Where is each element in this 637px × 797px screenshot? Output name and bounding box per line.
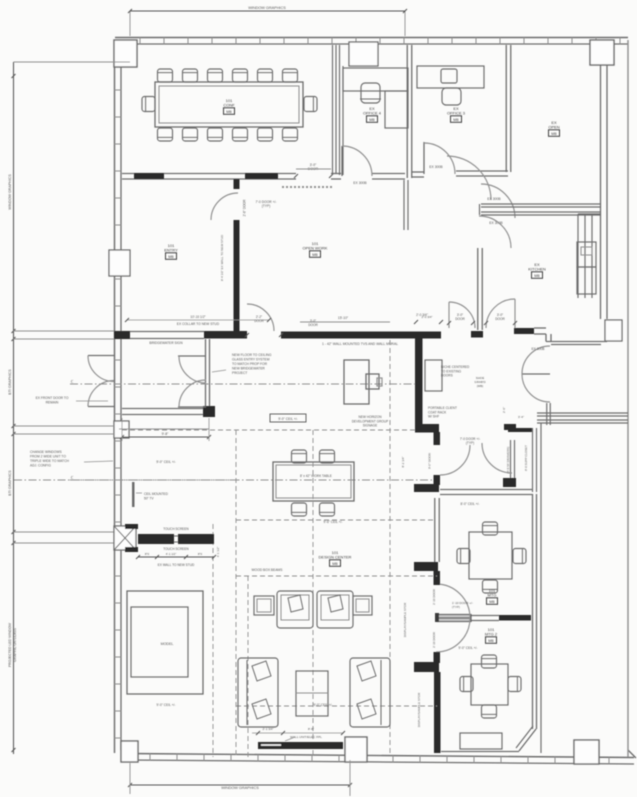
svg-text:DISPLAY/SAMPLE STOR: DISPLAY/SAMPLE STOR <box>417 692 421 727</box>
svg-text:MB: MB <box>312 253 318 257</box>
svg-text:(TYP): (TYP) <box>262 204 271 208</box>
svg-text:EX 300B: EX 300B <box>531 347 545 351</box>
svg-text:EX FRONT DOOR TO: EX FRONT DOOR TO <box>36 396 69 400</box>
svg-text:DISPLAY/SAMPLE STOR: DISPLAY/SAMPLE STOR <box>403 602 407 637</box>
svg-text:OFFICE 3: OFFICE 3 <box>447 111 466 116</box>
svg-text:9'-0" CEIL +/-: 9'-0" CEIL +/- <box>314 703 333 707</box>
svg-text:SIGNAGE: SIGNAGE <box>363 424 378 428</box>
svg-text:(4'-0 SF DRAWERS): (4'-0 SF DRAWERS) <box>506 447 510 474</box>
svg-text:ℂ: ℂ <box>71 379 74 384</box>
svg-text:2'-6" DOOR: 2'-6" DOOR <box>243 199 247 216</box>
svg-text:WINDOW GRAPHICS: WINDOW GRAPHICS <box>8 174 12 210</box>
svg-text:FROM 2 WIDE UNIT TO: FROM 2 WIDE UNIT TO <box>30 455 66 459</box>
svg-text:TO MATCH PROP FOR: TO MATCH PROP FOR <box>232 362 268 366</box>
svg-text:9'-4 1/2" EX WALL TO NEW STUD: 9'-4 1/2" EX WALL TO NEW STUD <box>220 234 224 281</box>
svg-text:EX WALL TO NEW STUD: EX WALL TO NEW STUD <box>158 563 195 567</box>
svg-text:ADJ. CONFIG: ADJ. CONFIG <box>30 464 51 468</box>
svg-text:TOUCH SCREEN: TOUCH SCREEN <box>163 527 189 531</box>
svg-text:DESIGN CENTER: DESIGN CENTER <box>319 555 352 560</box>
svg-text:(MB): (MB) <box>477 384 484 388</box>
svg-text:NEW FLOOR TO CEILING: NEW FLOOR TO CEILING <box>232 353 272 357</box>
svg-text:2'-0 3/4": 2'-0 3/4" <box>422 315 433 319</box>
svg-text:MB: MB <box>369 118 375 122</box>
svg-text:WINDOW GRAPHICS: WINDOW GRAPHICS <box>248 6 286 10</box>
svg-text:50" TV: 50" TV <box>144 496 154 500</box>
svg-text:MB: MB <box>534 274 540 278</box>
svg-text:15'-10": 15'-10" <box>338 316 349 320</box>
svg-text:8' x 42" WORK TABLE: 8' x 42" WORK TABLE <box>300 474 332 478</box>
svg-text:MTG 2: MTG 2 <box>485 632 498 637</box>
svg-text:CONF: CONF <box>223 103 235 108</box>
svg-text:2'-10 DOOR: 2'-10 DOOR <box>432 632 436 648</box>
svg-text:4'-1 1/2": 4'-1 1/2" <box>216 547 220 558</box>
svg-text:BRIDGEWATER SIGN: BRIDGEWATER SIGN <box>149 341 183 345</box>
svg-text:GLASS ENTRY SYSTEM: GLASS ENTRY SYSTEM <box>232 358 270 362</box>
svg-text:MB: MB <box>489 600 495 604</box>
svg-text:8"0: 8"0 <box>198 552 203 556</box>
svg-text:8"0: 8"0 <box>145 552 150 556</box>
svg-text:CHANGE WINDOWS: CHANGE WINDOWS <box>30 450 62 454</box>
svg-text:3'-0" DOOR: 3'-0" DOOR <box>428 452 432 469</box>
svg-text:(TYP): (TYP) <box>452 605 460 609</box>
svg-text:NEW BRIDGEWATER: NEW BRIDGEWATER <box>232 367 265 371</box>
svg-text:DOOR: DOOR <box>308 323 318 327</box>
svg-text:9'-0" CEIL +/-: 9'-0" CEIL +/- <box>459 646 478 650</box>
svg-text:8'-2 1/4": 8'-2 1/4" <box>401 457 405 468</box>
svg-text:OPEN: OPEN <box>548 125 559 130</box>
svg-text:OFFICE 4: OFFICE 4 <box>363 111 382 116</box>
svg-text:4'-1 1/2": 4'-1 1/2" <box>166 552 177 556</box>
svg-text:BTI GRAPHICS: BTI GRAPHICS <box>8 470 12 496</box>
svg-text:(TYP): (TYP) <box>466 441 474 445</box>
svg-text:BTI GRAPHICS: BTI GRAPHICS <box>8 369 12 395</box>
svg-text:REMAIN: REMAIN <box>46 400 59 404</box>
svg-text:10'-10 1/2": 10'-10 1/2" <box>190 315 205 319</box>
svg-text:OPEN WORK: OPEN WORK <box>303 246 328 251</box>
svg-text:PROJECTED LED WINDOW: PROJECTED LED WINDOW <box>8 622 12 667</box>
svg-text:WINDOW GRAPHICS: WINDOW GRAPHICS <box>221 786 259 790</box>
svg-text:DOORS: DOORS <box>441 374 453 378</box>
svg-text:8'-0" CEIL +/-: 8'-0" CEIL +/- <box>461 502 480 506</box>
svg-text:PROJECT: PROJECT <box>232 371 247 375</box>
svg-text:9'-0" CEIL +/-: 9'-0" CEIL +/- <box>156 460 176 464</box>
svg-text:8'-8": 8'-8" <box>308 727 314 731</box>
svg-text:9'-8": 9'-8" <box>162 432 170 436</box>
svg-text:1 - 42" WALL MOUNTED TVS AND W: 1 - 42" WALL MOUNTED TVS AND WALL MURAL <box>322 342 398 346</box>
svg-text:9'-0" CEIL +/-: 9'-0" CEIL +/- <box>278 417 298 421</box>
svg-text:MB: MB <box>488 639 494 643</box>
svg-text:ENTRY: ENTRY <box>164 248 178 253</box>
svg-text:MB: MB <box>453 118 459 122</box>
svg-text:WOOD BOX BEAMS: WOOD BOX BEAMS <box>252 568 284 572</box>
svg-text:MB: MB <box>332 562 338 566</box>
svg-text:8'-0 SUPP CLOSET: 8'-0 SUPP CLOSET <box>524 445 528 471</box>
svg-text:MODEL: MODEL <box>161 642 174 646</box>
svg-text:2'-1 3/4": 2'-1 3/4" <box>263 727 274 731</box>
svg-text:ℂ: ℂ <box>71 475 74 480</box>
svg-text:EX 300B: EX 300B <box>353 181 367 185</box>
svg-text:MB: MB <box>168 255 174 259</box>
svg-text:9'-6" CEIL +/-: 9'-6" CEIL +/- <box>324 520 343 524</box>
svg-text:KITCHEN: KITCHEN <box>528 267 546 272</box>
svg-text:EX COLLAR TO NEW STUD: EX COLLAR TO NEW STUD <box>177 322 220 326</box>
svg-text:MB: MB <box>226 110 232 114</box>
svg-text:DOOR: DOOR <box>495 317 505 321</box>
svg-text:GRAPHIC ON GLASS: GRAPHIC ON GLASS <box>13 627 17 661</box>
svg-text:2'-6": 2'-6" <box>502 407 506 413</box>
svg-text:3'-4": 3'-4" <box>518 415 524 419</box>
svg-text:MB: MB <box>551 132 557 136</box>
svg-text:EX 300B: EX 300B <box>429 165 443 169</box>
svg-text:EX 300B: EX 300B <box>487 197 501 201</box>
svg-text:9'-0" CEIL +/-: 9'-0" CEIL +/- <box>157 703 176 707</box>
svg-text:DOOR: DOOR <box>455 317 465 321</box>
svg-text:TOUCH SCREEN: TOUCH SCREEN <box>163 547 189 551</box>
svg-text:2'-10 DOOR: 2'-10 DOOR <box>432 589 436 605</box>
svg-text:W/ SHF: W/ SHF <box>428 415 439 419</box>
svg-text:TRIPLE WIDE TO MATCH: TRIPLE WIDE TO MATCH <box>30 459 69 463</box>
svg-text:MTG: MTG <box>488 593 497 598</box>
